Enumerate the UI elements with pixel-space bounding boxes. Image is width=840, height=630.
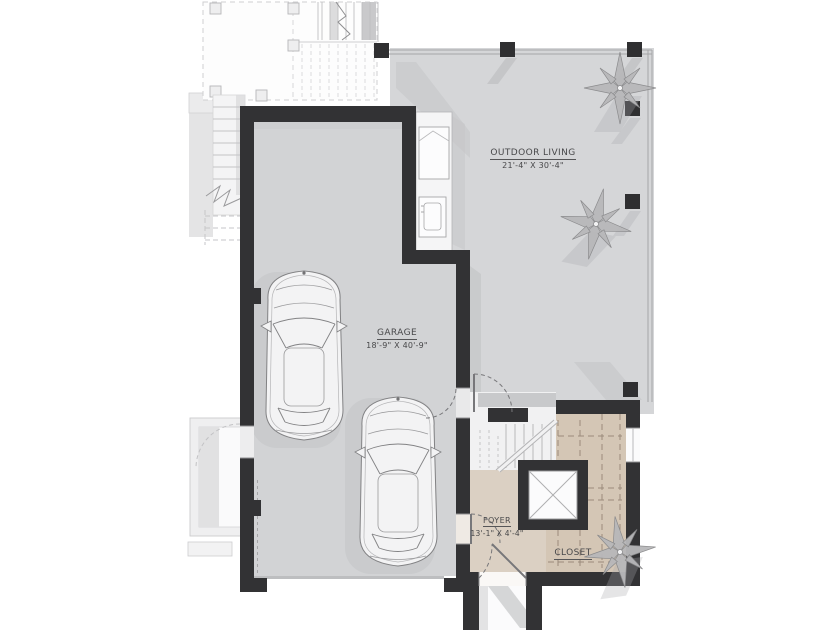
garage-name: GARAGE bbox=[377, 328, 417, 340]
utility-sink bbox=[419, 197, 446, 237]
garage-dims: 18'-9" X 40'-9" bbox=[322, 341, 472, 351]
floor-plan: OUTDOOR LIVING 21'-4" X 30'-4" GARAGE 18… bbox=[0, 0, 840, 630]
outdoor-living-name: OUTDOOR LIVING bbox=[490, 148, 575, 160]
closet-label: CLOSET bbox=[523, 540, 623, 560]
floor-plan-drawing bbox=[0, 0, 840, 630]
foyer-name: FOYER bbox=[483, 516, 511, 527]
entry-door-opening bbox=[479, 572, 526, 586]
mechanical-closet bbox=[416, 112, 452, 254]
window bbox=[626, 428, 640, 462]
car-top-view bbox=[345, 397, 441, 574]
garage-door-sill bbox=[254, 576, 444, 579]
foyer-dims: 13'-1" X 4'-4" bbox=[447, 529, 547, 538]
landing-step bbox=[478, 393, 556, 407]
outdoor-living-label: OUTDOOR LIVING 21'-4" X 30'-4" bbox=[433, 140, 633, 171]
outdoor-living-dims: 21'-4" X 30'-4" bbox=[433, 161, 633, 171]
foyer-label: FOYER 13'-1" X 4'-4" bbox=[447, 508, 547, 538]
closet-name: CLOSET bbox=[554, 548, 591, 560]
garage-label: GARAGE 18'-9" X 40'-9" bbox=[322, 320, 472, 351]
car-top-view bbox=[251, 271, 347, 448]
side-stoop bbox=[188, 418, 242, 556]
